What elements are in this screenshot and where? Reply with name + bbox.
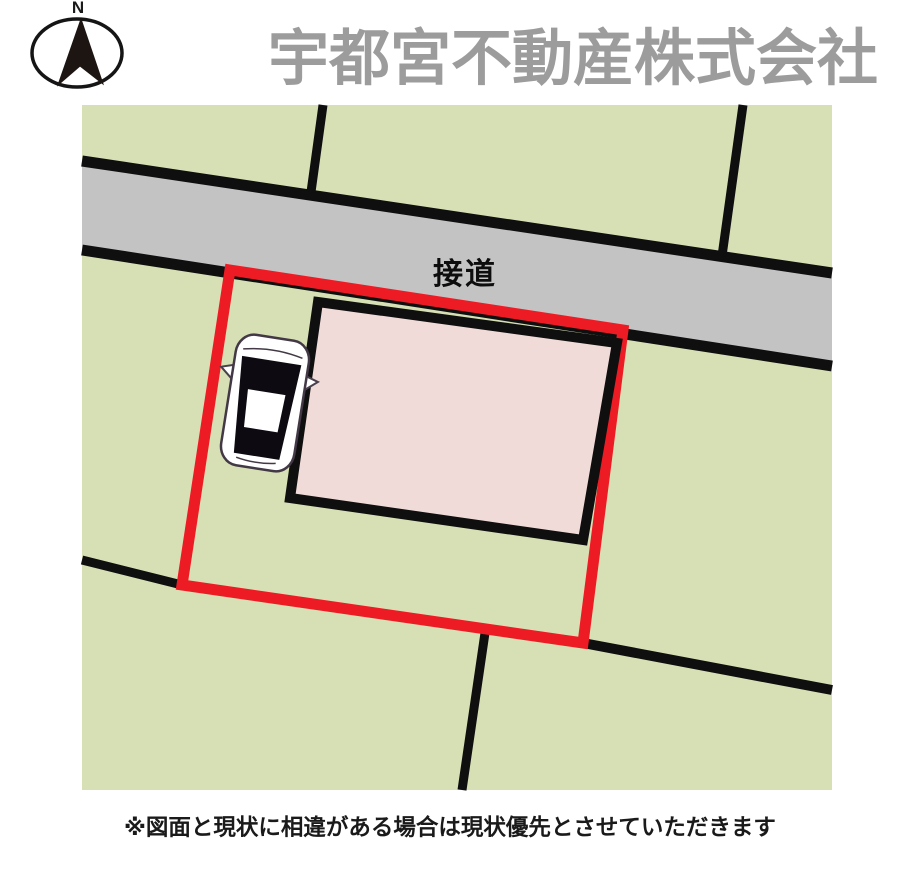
building-footprint [290,302,617,540]
compass-north-label: N [56,0,100,18]
site-plan-page: N 宇都宮不動産株式会社 接道 ※図面と現状に相違がある場合は現状優先とさせてい… [0,0,898,874]
page-title: 宇都宮不動産株式会社 [268,8,890,78]
site-plan-drawing [0,0,898,874]
north-compass-icon [32,19,122,87]
disclaimer-note: ※図面と現状に相違がある場合は現状優先とさせていただきます [124,810,776,842]
road-label: 接道 [433,249,497,293]
